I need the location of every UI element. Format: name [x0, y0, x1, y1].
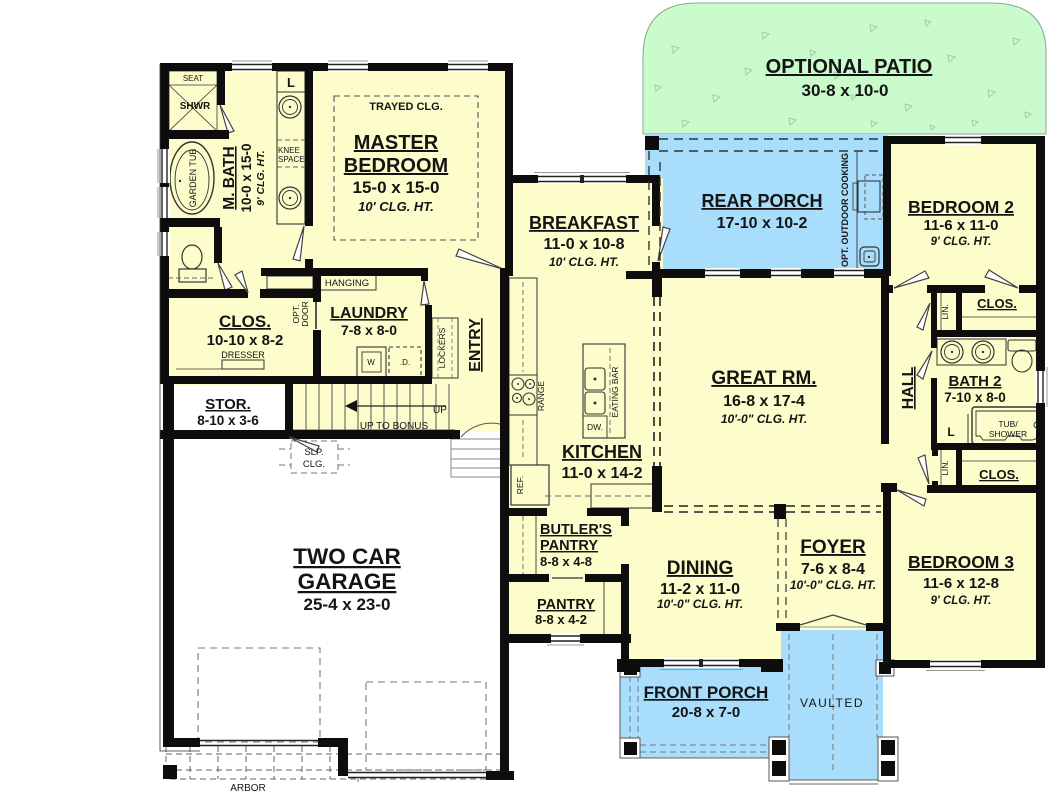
- svg-text:STOR.: STOR.: [205, 396, 251, 413]
- svg-text:TUB/: TUB/: [998, 419, 1018, 429]
- svg-text:10' CLG. HT.: 10' CLG. HT.: [358, 199, 434, 214]
- svg-text:ARBOR: ARBOR: [230, 783, 266, 794]
- svg-text:17-10 x 10-2: 17-10 x 10-2: [717, 215, 808, 232]
- svg-text:MASTER: MASTER: [354, 132, 439, 154]
- svg-text:CLOS.: CLOS.: [977, 296, 1017, 311]
- svg-text:BATH 2: BATH 2: [948, 373, 1001, 390]
- svg-text:KNEE: KNEE: [278, 146, 300, 155]
- svg-text:SEAT: SEAT: [183, 74, 203, 83]
- svg-text:11-6 x 12-8: 11-6 x 12-8: [923, 575, 999, 592]
- svg-text:LOCKERS: LOCKERS: [437, 327, 447, 368]
- svg-text:10'-0" CLG. HT.: 10'-0" CLG. HT.: [790, 578, 876, 592]
- svg-text:L: L: [947, 425, 954, 439]
- svg-text:16-8 x 17-4: 16-8 x 17-4: [723, 393, 805, 410]
- svg-text:PANTRY: PANTRY: [540, 538, 598, 554]
- svg-text:7-6 x 8-4: 7-6 x 8-4: [801, 561, 865, 578]
- svg-text:BREAKFAST: BREAKFAST: [529, 213, 639, 233]
- svg-text:UP TO BONUS: UP TO BONUS: [360, 421, 429, 432]
- svg-text:15-0 x 15-0: 15-0 x 15-0: [353, 178, 440, 197]
- svg-text:LAUNDRY: LAUNDRY: [330, 305, 408, 322]
- svg-text:DRESSER: DRESSER: [221, 350, 265, 360]
- svg-text:10-10 x 8-2: 10-10 x 8-2: [207, 332, 284, 349]
- svg-text:KITCHEN: KITCHEN: [562, 442, 642, 462]
- svg-text:8-8 x 4-2: 8-8 x 4-2: [535, 612, 587, 627]
- svg-text:VAULTED: VAULTED: [800, 696, 864, 710]
- svg-text:8-8 x 4-8: 8-8 x 4-8: [540, 554, 592, 569]
- svg-text:DW.: DW.: [587, 422, 603, 432]
- svg-text:UP: UP: [433, 405, 447, 416]
- svg-text:SHOWER: SHOWER: [989, 429, 1027, 439]
- svg-text:10'-0" CLG. HT.: 10'-0" CLG. HT.: [657, 597, 743, 611]
- svg-text:DOOR: DOOR: [300, 301, 310, 327]
- svg-text:BEDROOM 3: BEDROOM 3: [908, 552, 1014, 572]
- svg-text:7-8 x 8-0: 7-8 x 8-0: [341, 322, 397, 338]
- svg-text:11-2 x 11-0: 11-2 x 11-0: [660, 581, 740, 598]
- svg-text:FRONT PORCH: FRONT PORCH: [644, 683, 769, 702]
- svg-text:8-10 x 3-6: 8-10 x 3-6: [197, 413, 259, 428]
- svg-text:TWO CAR: TWO CAR: [293, 544, 400, 569]
- svg-text:9' CLG. HT.: 9' CLG. HT.: [931, 595, 992, 607]
- svg-text:CLOS.: CLOS.: [979, 467, 1019, 482]
- svg-text:REAR PORCH: REAR PORCH: [701, 191, 822, 211]
- svg-text:BUTLER'S: BUTLER'S: [540, 522, 612, 538]
- svg-text:L: L: [287, 75, 295, 90]
- svg-text:SHWR: SHWR: [180, 101, 211, 112]
- svg-text:W: W: [367, 358, 375, 367]
- svg-text:SLP.: SLP.: [304, 447, 323, 458]
- svg-text:DINING: DINING: [667, 558, 734, 579]
- svg-text:7-10 x 8-0: 7-10 x 8-0: [944, 390, 1006, 405]
- svg-text:30-8 x 10-0: 30-8 x 10-0: [802, 81, 889, 100]
- svg-text:BEDROOM: BEDROOM: [344, 155, 448, 177]
- svg-text:CLG.: CLG.: [303, 459, 325, 470]
- svg-text:HALL: HALL: [900, 366, 917, 409]
- svg-text:10' CLG. HT.: 10' CLG. HT.: [549, 255, 619, 269]
- svg-text:HANGING: HANGING: [325, 278, 369, 289]
- svg-text:PANTRY: PANTRY: [537, 597, 595, 613]
- svg-text:OPTIONAL PATIO: OPTIONAL PATIO: [766, 56, 933, 78]
- svg-text:TRAYED CLG.: TRAYED CLG.: [369, 101, 443, 113]
- svg-text:9' CLG. HT.: 9' CLG. HT.: [931, 236, 992, 248]
- svg-text:FOYER: FOYER: [800, 537, 866, 558]
- svg-text:GARAGE: GARAGE: [298, 569, 397, 594]
- svg-text:SPACE: SPACE: [278, 155, 305, 164]
- svg-text:ENTRY: ENTRY: [467, 318, 484, 372]
- svg-text:LIN.: LIN.: [940, 304, 950, 320]
- svg-text:GARDEN TUB: GARDEN TUB: [188, 149, 198, 208]
- svg-text:M. BATH: M. BATH: [221, 146, 238, 209]
- svg-text:.D.: .D.: [400, 358, 410, 367]
- svg-text:10-0 x 15-0: 10-0 x 15-0: [239, 143, 254, 212]
- svg-text:9' CLG. HT.: 9' CLG. HT.: [255, 150, 267, 205]
- svg-text:11-6 x 11-0: 11-6 x 11-0: [923, 217, 998, 234]
- svg-text:GREAT RM.: GREAT RM.: [711, 368, 816, 389]
- svg-text:CLOS.: CLOS.: [219, 312, 271, 331]
- svg-text:OPT. OUTDOOR COOKING: OPT. OUTDOOR COOKING: [840, 153, 850, 267]
- svg-text:10'-0" CLG. HT.: 10'-0" CLG. HT.: [721, 412, 807, 426]
- svg-text:20-8 x 7-0: 20-8 x 7-0: [672, 704, 740, 721]
- svg-text:EATING BAR: EATING BAR: [610, 367, 620, 418]
- svg-text:REF.: REF.: [515, 476, 525, 494]
- svg-text:BEDROOM 2: BEDROOM 2: [908, 197, 1014, 217]
- svg-text:LIN.: LIN.: [940, 460, 950, 476]
- svg-text:RANGE: RANGE: [536, 381, 546, 412]
- svg-text:11-0 x 10-8: 11-0 x 10-8: [544, 236, 625, 253]
- svg-text:11-0 x 14-2: 11-0 x 14-2: [562, 465, 643, 482]
- svg-text:25-4 x 23-0: 25-4 x 23-0: [304, 595, 391, 614]
